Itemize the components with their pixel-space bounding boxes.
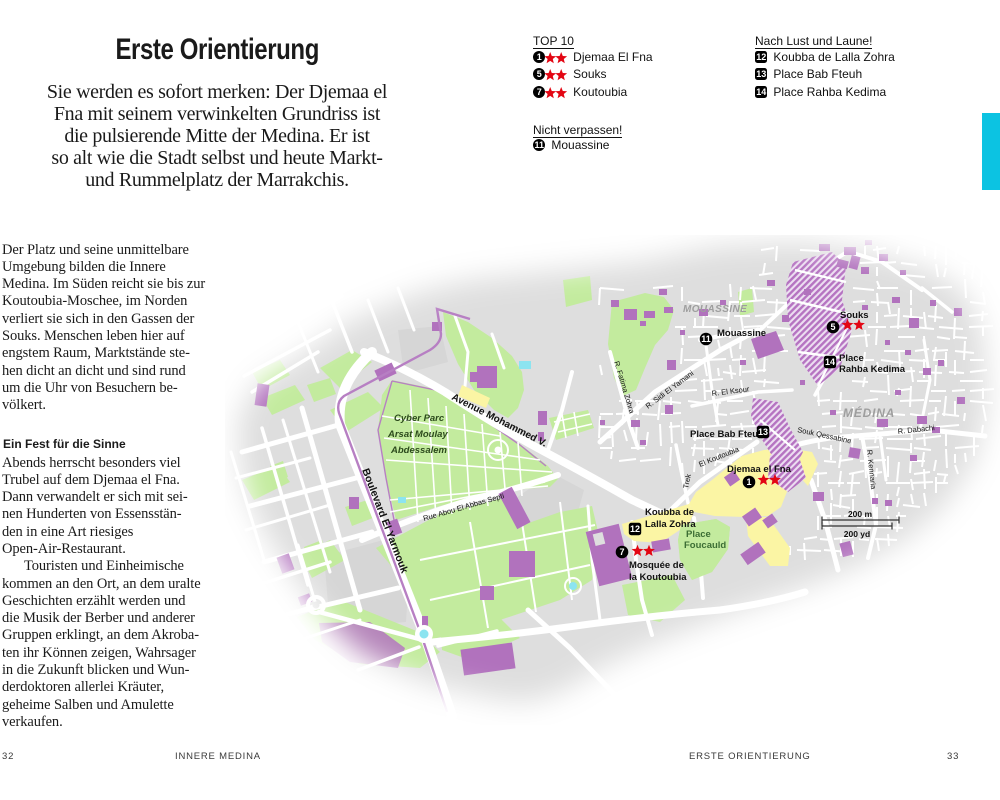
svg-text:Place: Place (686, 529, 711, 540)
svg-text:Cyber Parc: Cyber Parc (394, 413, 445, 424)
svg-text:11: 11 (701, 334, 711, 344)
svg-text:Abdessalem: Abdessalem (390, 445, 448, 456)
svg-text:Place: Place (839, 353, 864, 364)
svg-text:200 m: 200 m (848, 509, 873, 519)
svg-text:MOUASSINE: MOUASSINE (683, 304, 747, 315)
svg-text:1: 1 (746, 477, 751, 487)
svg-text:Foucauld: Foucauld (684, 540, 726, 551)
svg-text:Rahba Kedima: Rahba Kedima (839, 364, 906, 375)
svg-text:la Koutoubia: la Koutoubia (629, 572, 687, 583)
svg-text:200 yd: 200 yd (844, 529, 870, 539)
svg-text:7: 7 (619, 547, 624, 557)
svg-text:Souks: Souks (840, 310, 869, 321)
svg-text:14: 14 (825, 357, 835, 367)
svg-text:Mouassine: Mouassine (717, 328, 766, 339)
svg-text:MÉDINA: MÉDINA (843, 405, 895, 420)
svg-text:Lalla Zohra: Lalla Zohra (645, 519, 696, 530)
svg-text:12: 12 (630, 524, 640, 534)
svg-text:Djemaa el Fna: Djemaa el Fna (727, 464, 792, 475)
svg-text:Mosquée de: Mosquée de (629, 560, 684, 571)
svg-text:5: 5 (830, 322, 835, 332)
svg-text:13: 13 (758, 427, 768, 437)
svg-text:Koubba de: Koubba de (645, 507, 694, 518)
svg-text:Place Bab Fteuh: Place Bab Fteuh (690, 429, 764, 440)
svg-text:Arsat Moulay: Arsat Moulay (387, 429, 448, 440)
